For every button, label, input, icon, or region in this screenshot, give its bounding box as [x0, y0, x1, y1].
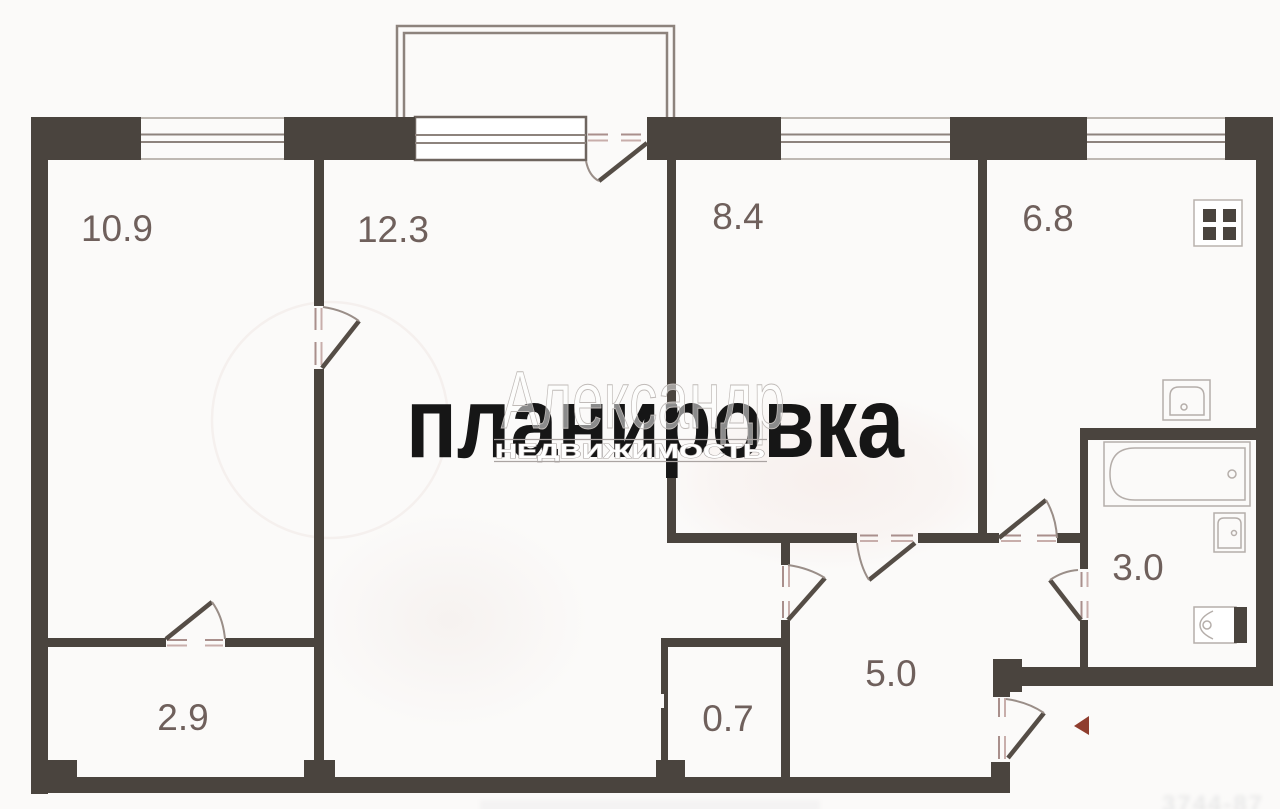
svg-text:3.0: 3.0: [1112, 547, 1163, 588]
svg-text:НЕДВИЖИМОСТЬ: НЕДВИЖИМОСТЬ: [495, 441, 765, 463]
svg-text:3744-87: 3744-87: [1162, 791, 1264, 809]
svg-text:2.9: 2.9: [157, 697, 208, 738]
svg-text:6.8: 6.8: [1022, 198, 1073, 239]
svg-text:Александр: Александр: [501, 355, 785, 446]
svg-text:5.0: 5.0: [865, 653, 916, 694]
svg-text:8.4: 8.4: [712, 196, 763, 237]
svg-text:12.3: 12.3: [357, 209, 429, 250]
svg-text:0.7: 0.7: [702, 698, 753, 739]
svg-text:10.9: 10.9: [81, 208, 153, 249]
